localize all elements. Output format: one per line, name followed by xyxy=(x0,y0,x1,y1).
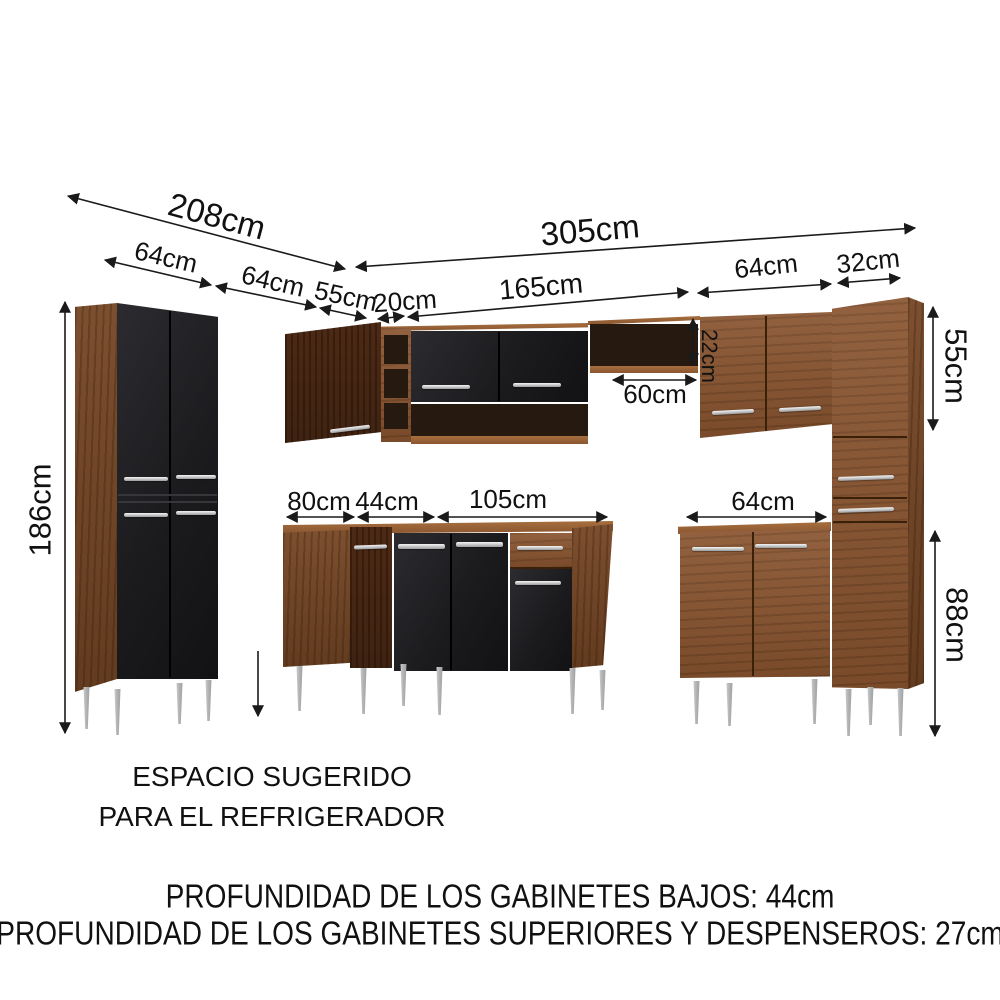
product-dimension-diagram: 208cm 64cm 64cm 55cm 20cm 165cm 305cm 64… xyxy=(0,0,1000,1000)
dim-label-base-corner-left-width: 80cm xyxy=(287,488,351,514)
dim-label-upper-cabinet-height: 55cm xyxy=(941,328,972,404)
dim-label-niche-height: 22cm xyxy=(698,329,720,383)
dim-label-corner-filler-width: 20cm xyxy=(372,286,437,316)
dim-label-niche-width: 60cm xyxy=(623,381,687,407)
dim-label-right-upper-width: 64cm xyxy=(733,250,799,283)
depth-note-upper: PROFUNDIDAD DE LOS GABINETES SUPERIORES … xyxy=(0,917,1000,950)
depth-note-base: PROFUNDIDAD DE LOS GABINETES BAJOS: 44cm xyxy=(166,880,835,913)
dim-label-right-run-total: 305cm xyxy=(539,209,641,251)
fridge-note-line2: PARA EL REFRIGERADOR xyxy=(99,803,446,831)
fridge-note-line1: ESPACIO SUGERIDO xyxy=(132,763,412,791)
dim-label-base-corner-front-width: 44cm xyxy=(355,488,419,514)
dim-label-center-upper-width: 165cm xyxy=(498,269,584,304)
dim-label-base-center-width: 105cm xyxy=(469,486,547,512)
dim-label-tall-side-width: 32cm xyxy=(835,245,901,278)
dim-label-pantry-height: 186cm xyxy=(25,463,56,556)
dim-label-base-cabinet-height: 88cm xyxy=(942,587,973,663)
dimension-line xyxy=(838,278,900,283)
dimension-line xyxy=(698,284,831,293)
dim-label-base-right-width: 64cm xyxy=(731,488,795,514)
